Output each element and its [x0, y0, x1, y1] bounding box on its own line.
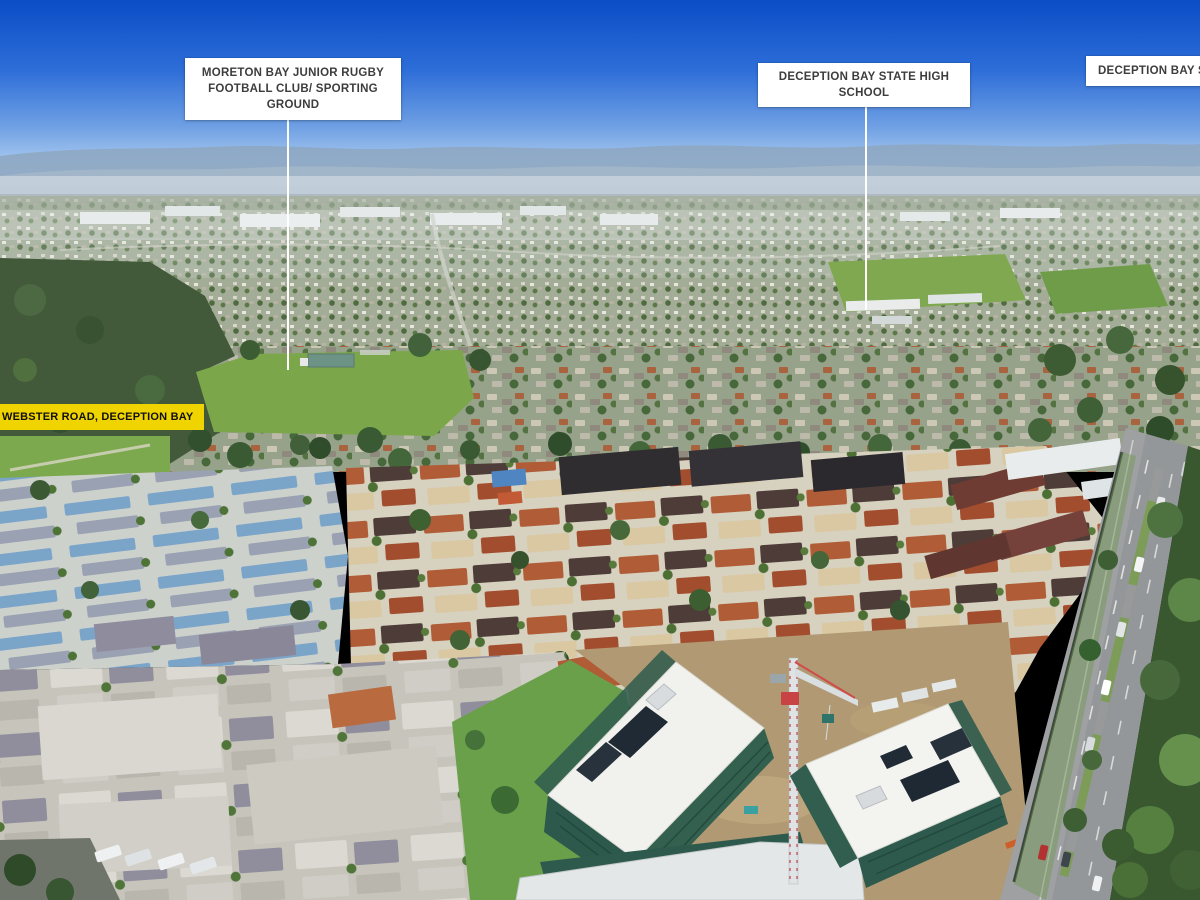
annotation-rugby-club: MORETON BAY JUNIOR RUGBY FOOTBALL CLUB/ … — [185, 58, 401, 120]
clubhouse — [308, 354, 354, 367]
leader-line-rugby — [287, 104, 289, 370]
aerial-photo: MORETON BAY JUNIOR RUGBY FOOTBALL CLUB/ … — [0, 0, 1200, 900]
annotation-rugby-line2: FOOTBALL CLUB/ SPORTING GROUND — [191, 81, 395, 113]
annotation-rugby-line1: MORETON BAY JUNIOR RUGBY — [191, 65, 395, 81]
annotation-street: WEBSTER ROAD, DECEPTION BAY — [0, 404, 204, 430]
aerial-scene — [0, 0, 1200, 900]
annotation-high-school: DECEPTION BAY STATE HIGH SCHOOL — [758, 63, 970, 107]
leader-line-school — [865, 90, 867, 310]
crane-cab — [781, 692, 799, 705]
annotation-shops: DECEPTION BAY SHOP — [1086, 56, 1200, 86]
